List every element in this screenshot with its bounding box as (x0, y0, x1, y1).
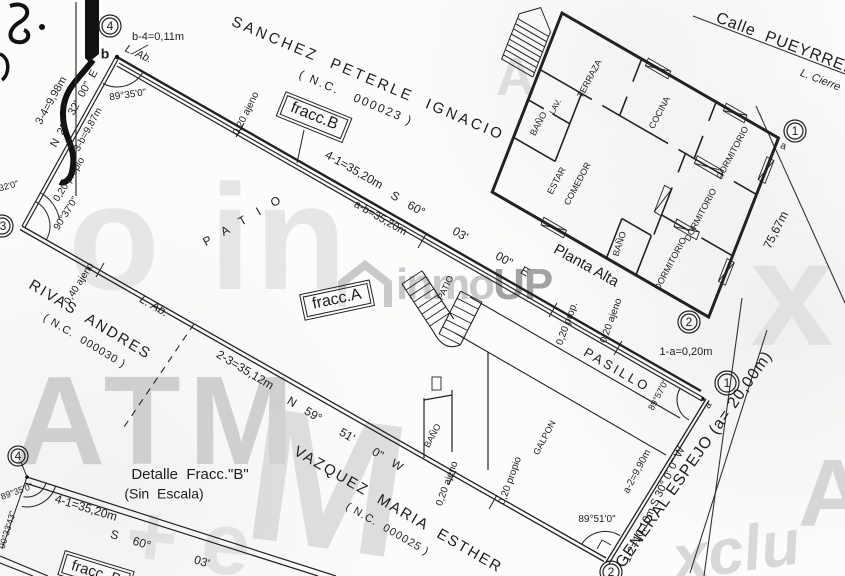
house-entry-stairs (502, 0, 557, 77)
galpon-walls (424, 352, 488, 470)
detail-corner-dot (25, 475, 29, 479)
vertex-4-detail: 4 (15, 449, 22, 463)
vertex-1-street: 1 (792, 124, 799, 138)
tie-b4-dim: b-4=0,11m (132, 32, 184, 44)
point-b-label: b (101, 47, 110, 62)
vertex-1: 1 (724, 376, 731, 390)
detail-title: Detalle Fracc."B" (131, 467, 248, 483)
vertex-2-house: 2 (686, 315, 693, 329)
detail-subtitle: (Sin Escala) (124, 487, 203, 502)
vertex-4: 4 (107, 19, 114, 33)
angle-2-label: 89°51'0" (578, 515, 615, 526)
tie-1a-dim: 1-a=0,20m (660, 347, 713, 359)
boundary-right (606, 399, 709, 564)
point-b-dot (115, 55, 119, 59)
vertex-3: 3 (0, 219, 6, 233)
boundary-top (117, 57, 704, 401)
vertex-2: 2 (608, 565, 615, 576)
survey-plan-sheet: o in x ATM M + e xclu A A inmoUP (0, 0, 845, 576)
